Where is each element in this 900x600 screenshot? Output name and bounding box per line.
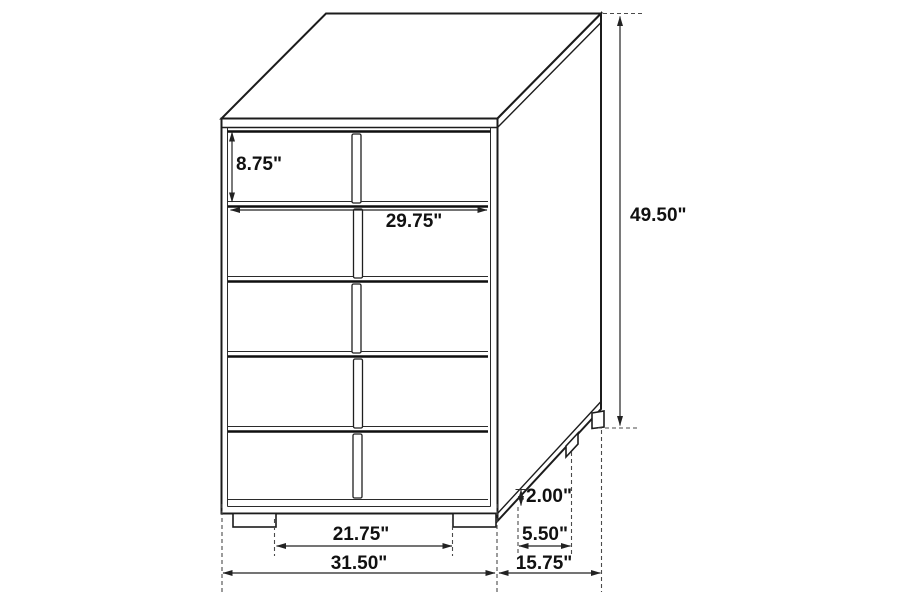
front-left-foot [233, 514, 276, 528]
dim-label-overall-depth: 15.75" [516, 553, 573, 574]
dim-label-side-foot-depth: 5.50" [522, 524, 568, 545]
back-right-foot [592, 411, 604, 429]
furniture-dimension-diagram: 8.75" 29.75" 49.50" 2.00" 5.50" 21.75" 3… [0, 0, 900, 600]
divider-strip-row5 [353, 434, 362, 498]
dim-label-overall-width: 31.50" [331, 553, 388, 574]
divider-strip-row3 [352, 284, 361, 353]
drawer-center-divider [352, 134, 363, 498]
dim-label-drawer-width: 29.75" [386, 211, 443, 232]
divider-strip-row2 [354, 209, 363, 278]
front-right-foot [453, 514, 496, 528]
divider-strip-row4 [354, 359, 363, 428]
dim-label-top-drawer-height: 8.75" [236, 154, 282, 175]
diagram-canvas: 8.75" 29.75" 49.50" 2.00" 5.50" 21.75" 3… [0, 0, 900, 600]
divider-strip-row1 [352, 134, 361, 203]
dim-label-foot-height: 2.00" [526, 486, 572, 507]
dim-label-front-feet-spacing: 21.75" [333, 524, 390, 545]
chest-body [222, 14, 602, 522]
dim-label-overall-height: 49.50" [630, 205, 687, 226]
